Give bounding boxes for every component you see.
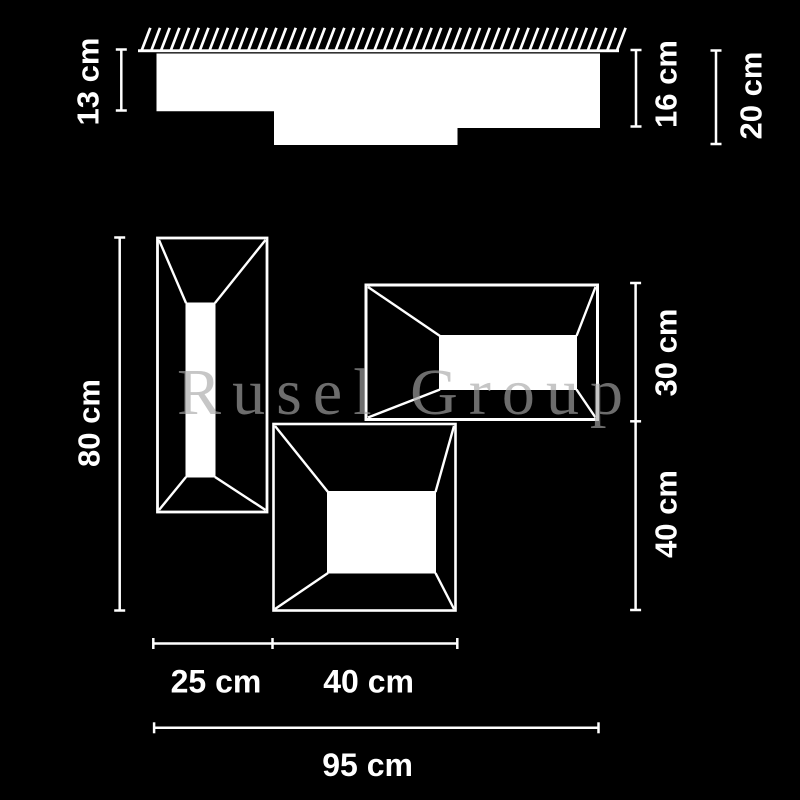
svg-text:30 cm: 30 cm xyxy=(649,309,684,397)
svg-text:80 cm: 80 cm xyxy=(72,379,107,467)
svg-text:13 cm: 13 cm xyxy=(71,38,106,126)
svg-text:25 cm: 25 cm xyxy=(171,664,262,700)
svg-text:20 cm: 20 cm xyxy=(734,52,769,140)
svg-text:40 cm: 40 cm xyxy=(649,470,684,558)
svg-text:16 cm: 16 cm xyxy=(649,40,684,128)
svg-text:40 cm: 40 cm xyxy=(323,664,414,700)
svg-text:95 cm: 95 cm xyxy=(322,747,413,783)
